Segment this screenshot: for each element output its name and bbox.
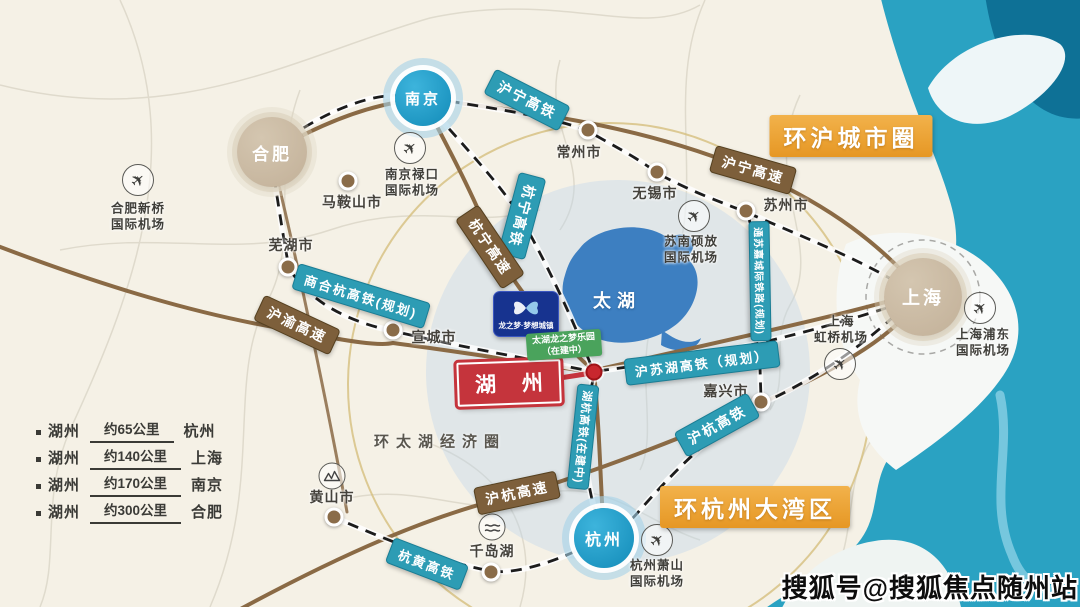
distance-from: 湖州 bbox=[48, 447, 80, 468]
airplane-icon: ✈ bbox=[399, 137, 421, 159]
sunan-airport-icon: ✈ bbox=[678, 200, 710, 232]
distance-row: 湖州 约300公里 合肥 bbox=[36, 501, 223, 526]
region-badge-hangzhou-bay: 环杭州大湾区 bbox=[660, 486, 850, 528]
distance-from: 湖州 bbox=[48, 501, 80, 522]
city-label-wuhu: 芜湖市 bbox=[269, 235, 314, 255]
distance-row: 湖州 约140公里 上海 bbox=[36, 447, 223, 472]
mountain-icon bbox=[319, 463, 346, 490]
city-label-maanshan: 马鞍山市 bbox=[322, 192, 382, 212]
airplane-icon: ✈ bbox=[969, 297, 991, 319]
bullet-icon bbox=[36, 484, 41, 489]
rail-badge-tongsujia: 通苏嘉城际铁路(规划) bbox=[748, 221, 771, 341]
lake-icon bbox=[479, 514, 506, 541]
nanjing-airport-icon: ✈ bbox=[394, 132, 426, 164]
city-dot-wuxi bbox=[648, 163, 667, 182]
distance-from: 湖州 bbox=[48, 474, 80, 495]
xiaoshan-airport-icon: ✈ bbox=[641, 524, 673, 556]
hongqiao-airport-icon: ✈ bbox=[824, 348, 856, 380]
city-name-hefei: 合肥 bbox=[252, 140, 292, 165]
distance-value: 约170公里 bbox=[90, 472, 181, 497]
city-label-xuancheng: 宣城市 bbox=[412, 327, 457, 347]
city-label-wuxi: 无锡市 bbox=[633, 183, 678, 203]
city-name-shanghai: 上海 bbox=[902, 284, 944, 310]
airplane-icon: ✈ bbox=[829, 353, 851, 375]
huzhou-stamp: 湖 州 bbox=[456, 359, 561, 407]
city-node-hangzhou: 杭州 bbox=[574, 508, 634, 568]
distance-to: 合肥 bbox=[191, 501, 223, 522]
city-dot-xuancheng bbox=[384, 321, 403, 340]
pudong-airport-icon: ✈ bbox=[964, 292, 996, 324]
city-node-nanjing: 南京 bbox=[395, 70, 451, 126]
airport-label-shanghai-hongqiao: 上海 虹桥机场 bbox=[814, 314, 868, 345]
region-badge-shanghai-circle: 环沪城市圈 bbox=[770, 115, 933, 157]
bullet-icon bbox=[36, 457, 41, 462]
city-dot-huangshan bbox=[325, 508, 344, 527]
bullet-icon bbox=[36, 430, 41, 435]
hefei-airport-icon: ✈ bbox=[122, 164, 154, 196]
city-dot-suzhou bbox=[737, 202, 756, 221]
distance-from: 湖州 bbox=[48, 420, 80, 441]
city-node-hefei: 合肥 bbox=[237, 117, 307, 187]
bullet-icon bbox=[36, 511, 41, 516]
distance-value: 约300公里 bbox=[90, 499, 181, 524]
location-map: 合肥 南京 上海 杭州 常州市 无锡市 苏州市 马鞍山市 芜湖市 宣城市 嘉兴市… bbox=[0, 0, 1080, 607]
city-dot-changzhou bbox=[579, 121, 598, 140]
airport-label-hefei-xinqiao: 合肥新桥 国际机场 bbox=[111, 201, 165, 232]
taihu-lake-label: 太湖 bbox=[593, 287, 641, 313]
distance-to: 杭州 bbox=[184, 420, 216, 441]
city-label-qiandaohu: 千岛湖 bbox=[470, 541, 515, 561]
distance-to: 上海 bbox=[191, 447, 223, 468]
airport-label-hangzhou-xiaoshan: 杭州萧山 国际机场 bbox=[630, 558, 684, 589]
project-logo: 龙之梦·梦想城镇 bbox=[493, 291, 559, 337]
huzhou-hub-node bbox=[586, 364, 603, 381]
airport-label-nanjing-lukou: 南京禄口 国际机场 bbox=[385, 167, 439, 198]
distance-to: 南京 bbox=[191, 474, 223, 495]
airplane-icon: ✈ bbox=[127, 169, 149, 191]
city-label-suzhou: 苏州市 bbox=[764, 195, 809, 215]
distance-value: 约140公里 bbox=[90, 445, 181, 470]
distance-value: 约65公里 bbox=[90, 418, 174, 443]
airplane-icon: ✈ bbox=[683, 205, 705, 227]
city-name-nanjing: 南京 bbox=[405, 88, 441, 109]
city-name-hangzhou: 杭州 bbox=[585, 526, 623, 550]
project-logo-text: 龙之梦·梦想城镇 bbox=[499, 320, 554, 331]
sohu-watermark: 搜狐号@搜狐焦点随州站 bbox=[782, 568, 1078, 605]
park-label-longzhimeng: 太湖龙之梦乐园 （在建中） bbox=[526, 329, 603, 362]
city-label-huangshan: 黄山市 bbox=[310, 487, 355, 507]
distance-row: 湖州 约170公里 南京 bbox=[36, 474, 223, 499]
airport-label-sunan-shuofang: 苏南硕放 国际机场 bbox=[664, 234, 718, 265]
city-node-shanghai: 上海 bbox=[884, 258, 962, 336]
butterfly-icon bbox=[509, 298, 543, 318]
airport-label-shanghai-pudong: 上海浦东 国际机场 bbox=[956, 327, 1010, 358]
distance-row: 湖州 约65公里 杭州 bbox=[36, 420, 216, 445]
economic-circle-label: 环太湖经济圈 bbox=[374, 431, 506, 452]
airplane-icon: ✈ bbox=[646, 529, 668, 551]
city-label-changzhou: 常州市 bbox=[557, 142, 602, 162]
city-dot-qiandaohu bbox=[482, 563, 501, 582]
city-dot-maanshan bbox=[339, 172, 358, 191]
